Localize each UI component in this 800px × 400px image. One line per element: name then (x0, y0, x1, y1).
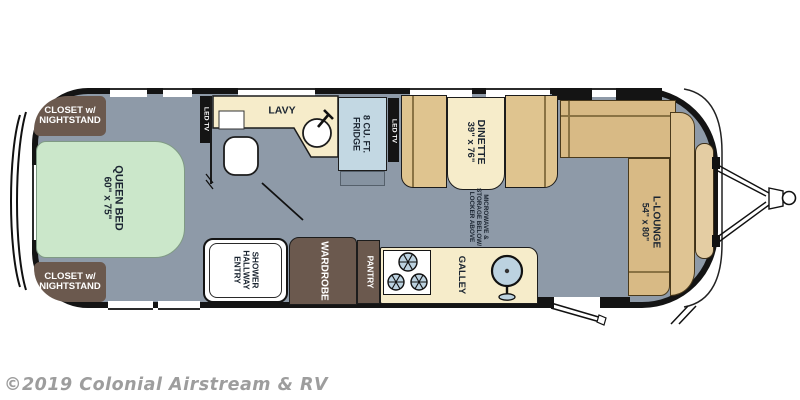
galley-sink-drain (505, 269, 509, 273)
hitch-mount-top (712, 157, 720, 169)
watermark: ©2019 Colonial Airstream & RV (4, 375, 328, 395)
hitch-ball (783, 192, 796, 205)
wardrobe-label: WARDROBE (318, 241, 329, 300)
front-skin-line (684, 89, 722, 307)
closet-bottom-label: CLOSET w/ NIGHTSTAND (39, 272, 101, 293)
lavy-label: LAVY (268, 105, 295, 116)
shower-label-line2: HALLWAY (241, 250, 250, 289)
shower-label-line3: ENTRY (232, 250, 241, 289)
galley-faucet-base (499, 294, 515, 300)
rear-bumper-inner (17, 112, 26, 290)
door-hinge-hatch (206, 174, 213, 189)
hitch-a-frame (716, 164, 769, 244)
dinette-label: DINETTE 39" x 76" (464, 120, 486, 165)
microwave-note-line3: LOCKER ABOVE (468, 188, 475, 246)
closet-label-line2: NIGHTSTAND (39, 116, 101, 126)
lavy-sink (303, 119, 331, 147)
pantry-label: PANTRY (364, 256, 373, 289)
entry-door-handle (597, 315, 606, 325)
hitch-coupler (769, 188, 783, 209)
fridge-label-line1: 8 CU. FT. (361, 115, 371, 153)
fridge-label-line2: FRIDGE (351, 115, 361, 153)
queen-bed-label: QUEEN BED 60" x 75" (101, 165, 124, 230)
microwave-note: MICROWAVE & STORAGE BELOW/ LOCKER ABOVE (468, 188, 488, 246)
shower-label: SHOWER HALLWAY ENTRY (232, 250, 259, 289)
entry-door-leaf (551, 303, 602, 322)
floorplan-canvas: CLOSET w/ NIGHTSTAND CLOSET w/ NIGHTSTAN… (0, 0, 800, 400)
dinette-dims: 39" x 76" (464, 120, 474, 165)
burner-icons (388, 253, 427, 290)
toilet (224, 137, 258, 175)
l-lounge-name: L-LOUNGE (649, 196, 660, 248)
bathroom-door-swing (262, 183, 303, 220)
l-lounge-label: L-LOUNGE 54" x 80" (640, 196, 661, 248)
galley-label: GALLEY (456, 256, 466, 295)
rear-bumper-outer (11, 115, 20, 287)
fridge-label: 8 CU. FT. FRIDGE (351, 115, 370, 153)
queen-bed-name: QUEEN BED (111, 165, 123, 230)
led-tv-right-label: LED TV (390, 119, 397, 143)
closet-top-label: CLOSET w/ NIGHTSTAND (39, 106, 101, 127)
queen-bed-dims: 60" x 75" (101, 165, 112, 230)
closet-label-line2: NIGHTSTAND (39, 282, 101, 292)
microwave-note-line1: MICROWAVE & (481, 188, 488, 246)
dinette-name: DINETTE (474, 120, 485, 165)
lavy-hamper (219, 111, 244, 129)
led-tv-left-label: LED TV (202, 107, 209, 131)
microwave-note-line2: STORAGE BELOW/ (475, 188, 482, 246)
shower-label-line1: SHOWER (249, 250, 258, 289)
l-lounge-dims: 54" x 80" (640, 196, 650, 248)
stabilizer-jack (671, 306, 696, 324)
